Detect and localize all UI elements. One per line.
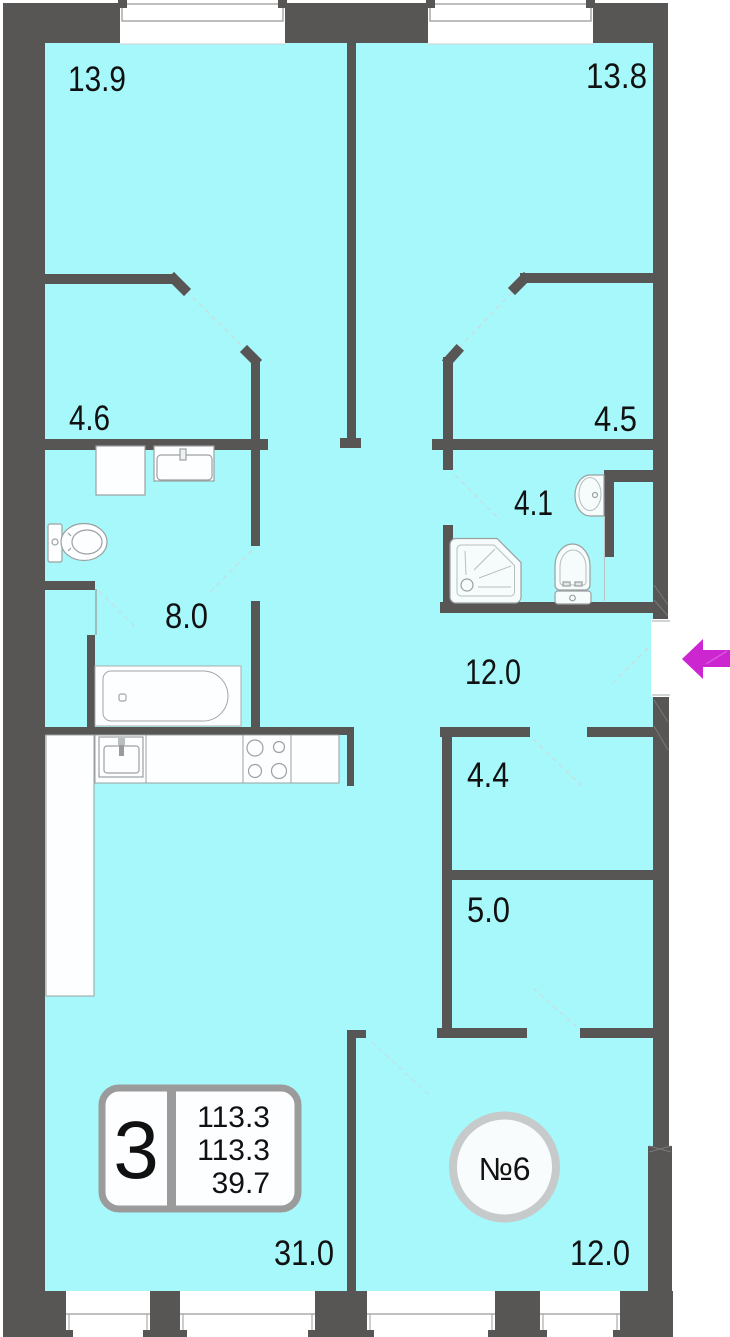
svg-text:113.3: 113.3	[197, 1134, 270, 1167]
svg-text:113.3: 113.3	[197, 1101, 270, 1134]
svg-text:13.9: 13.9	[68, 60, 126, 99]
svg-text:13.8: 13.8	[586, 57, 647, 96]
svg-text:4.1: 4.1	[514, 484, 553, 523]
svg-text:4.6: 4.6	[69, 399, 110, 438]
svg-text:39.7: 39.7	[212, 1167, 270, 1200]
svg-text:12.0: 12.0	[465, 653, 521, 692]
svg-text:№6: №6	[478, 1151, 530, 1187]
svg-text:12.0: 12.0	[570, 1234, 630, 1273]
svg-text:8.0: 8.0	[165, 597, 208, 636]
svg-text:3: 3	[113, 1105, 159, 1196]
svg-text:31.0: 31.0	[274, 1234, 334, 1273]
svg-text:5.0: 5.0	[467, 891, 510, 930]
svg-text:4.4: 4.4	[467, 756, 509, 795]
svg-text:4.5: 4.5	[594, 400, 637, 439]
